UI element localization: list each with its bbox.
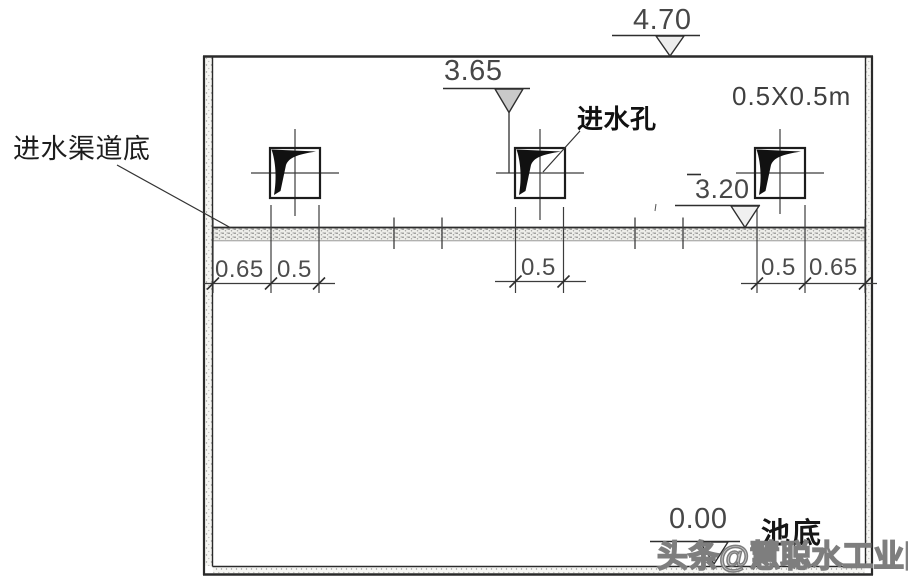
dimension-label-left-0-5: 0.5 bbox=[277, 258, 312, 282]
elevation-label-3-65: 3.65 bbox=[444, 57, 502, 86]
right-wall-fill bbox=[867, 58, 872, 566]
dimension-label-right-0-65: 0.65 bbox=[809, 256, 858, 280]
leader-lines bbox=[117, 131, 580, 228]
tank-outline bbox=[203, 56, 873, 575]
elevation-triangle-icon bbox=[731, 206, 759, 228]
left-wall-fill bbox=[205, 58, 212, 566]
corner-wedge-icon bbox=[757, 150, 802, 196]
dimension-label-right-0-5: 0.5 bbox=[761, 256, 796, 280]
small-tick-mark bbox=[655, 204, 656, 211]
hole-size-label: 0.5X0.5m bbox=[732, 83, 851, 109]
corner-wedge-icon bbox=[517, 150, 562, 196]
drawing-canvas: 4.70 3.65 3.20 0.00 0.5X0.5m 进水渠道底 进水孔 池… bbox=[0, 0, 908, 586]
dimension-label-left-0-65: 0.65 bbox=[215, 258, 264, 282]
elevation-triangle-icon bbox=[656, 36, 684, 56]
elevation-label-0-00: 0.00 bbox=[669, 505, 727, 534]
dimension-label-middle-0-5: 0.5 bbox=[521, 256, 556, 280]
watermark-text: 头条@慧聪水工业网 bbox=[657, 531, 908, 576]
elevation-triangle-icon bbox=[495, 89, 523, 113]
elevation-marker-3-65 bbox=[443, 89, 530, 173]
channel-bottom-band bbox=[213, 204, 865, 249]
channel-bottom-label: 进水渠道底 bbox=[13, 136, 151, 163]
channel-bottom-leader bbox=[117, 165, 231, 228]
elevation-marker-4-70 bbox=[612, 36, 700, 57]
elevation-label-3-20: 3.20 bbox=[695, 176, 750, 203]
channel-band-fill bbox=[213, 228, 865, 241]
inlet-hole-left bbox=[251, 129, 339, 216]
corner-wedge-icon bbox=[272, 150, 317, 196]
inlet-hole-label: 进水孔 bbox=[577, 106, 657, 132]
elevation-label-4-70: 4.70 bbox=[633, 6, 691, 35]
